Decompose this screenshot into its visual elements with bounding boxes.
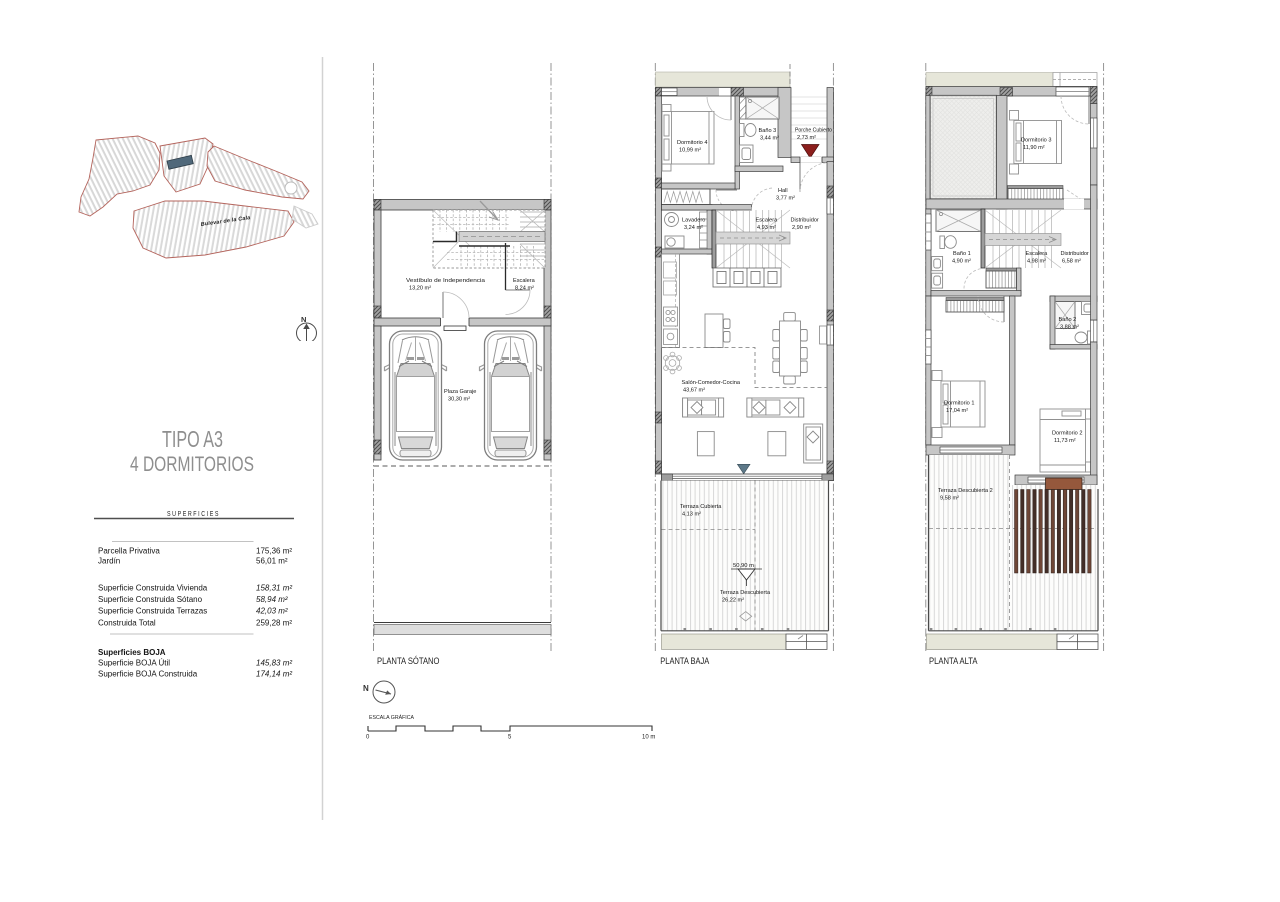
svg-text:Escalera: Escalera [513,278,536,284]
svg-text:Distribuidor 2: Distribuidor 2 [1061,251,1094,257]
svg-text:Lavadero: Lavadero [682,218,705,224]
svg-text:8,24 m²: 8,24 m² [515,286,534,292]
svg-text:3,44 m²: 3,44 m² [760,136,779,142]
svg-text:PLANTA BAJA: PLANTA BAJA [660,656,709,666]
svg-text:11,90 m²: 11,90 m² [1023,145,1045,151]
svg-text:Dormitorio 3: Dormitorio 3 [1021,138,1051,144]
svg-text:Escalera: Escalera [756,218,779,224]
svg-text:175,36 m²: 175,36 m² [256,547,292,556]
svg-text:Terraza Descubierta: Terraza Descubierta [720,590,771,596]
svg-text:Terraza Descubierta 2: Terraza Descubierta 2 [938,488,993,494]
svg-text:TIPO A3: TIPO A3 [162,426,223,452]
svg-text:Superficie Construida Sótano: Superficie Construida Sótano [98,595,203,604]
svg-text:58,94 m²: 58,94 m² [256,595,288,604]
svg-text:3,88 m²: 3,88 m² [1060,325,1079,331]
svg-text:259,28 m²: 259,28 m² [256,619,292,628]
svg-text:42,03 m²: 42,03 m² [256,607,288,616]
svg-text:4,98 m²: 4,98 m² [1027,259,1046,265]
svg-text:Superficie BOJA Construida: Superficie BOJA Construida [98,670,198,679]
svg-text:10,99 m²: 10,99 m² [679,148,701,154]
svg-text:174,14 m²: 174,14 m² [256,670,292,679]
svg-text:Hall: Hall [778,188,788,194]
svg-text:Superficie BOJA Útil: Superficie BOJA Útil [98,659,170,668]
svg-text:13,20 m²: 13,20 m² [409,286,431,292]
svg-text:Porche Cubierto: Porche Cubierto [795,128,832,134]
svg-text:10 m: 10 m [642,735,655,741]
svg-text:Distribuidor: Distribuidor [791,218,819,224]
svg-text:Terraza Cubierta: Terraza Cubierta [680,504,722,510]
svg-text:4,93 m²: 4,93 m² [757,225,776,231]
svg-text:PLANTA ALTA: PLANTA ALTA [929,656,978,666]
svg-text:4 DORMITORIOS: 4 DORMITORIOS [130,453,254,476]
svg-text:50,90 m: 50,90 m [733,563,754,569]
svg-text:Baño 1: Baño 1 [953,251,971,257]
svg-text:56,01 m²: 56,01 m² [256,557,288,566]
svg-text:3,77 m²: 3,77 m² [776,196,795,202]
svg-text:Superficie Construida Terrazas: Superficie Construida Terrazas [98,607,207,616]
svg-text:Superficies BOJA: Superficies BOJA [98,648,166,657]
svg-text:17,04 m²: 17,04 m² [946,408,968,414]
svg-text:4,13 m²: 4,13 m² [682,512,701,518]
svg-text:158,31 m²: 158,31 m² [256,584,292,593]
svg-text:11,73 m²: 11,73 m² [1054,438,1076,444]
svg-text:Dormitorio 1: Dormitorio 1 [944,401,974,407]
svg-text:Vestíbulo de Independencia: Vestíbulo de Independencia [406,278,486,284]
svg-text:4,90 m²: 4,90 m² [952,259,971,265]
svg-text:26,22 m²: 26,22 m² [722,598,744,604]
svg-text:Dormitorio 2: Dormitorio 2 [1052,431,1082,437]
svg-text:PLANTA SÓTANO: PLANTA SÓTANO [377,656,440,666]
svg-text:SUPERFICIES: SUPERFICIES [167,509,220,518]
svg-text:ESCALA GRÁFICA: ESCALA GRÁFICA [369,714,414,721]
svg-text:2,90 m²: 2,90 m² [792,225,811,231]
svg-text:30,30 m²: 30,30 m² [448,397,470,403]
svg-text:Parcella Privativa: Parcella Privativa [98,547,160,556]
svg-text:2,73 m²: 2,73 m² [797,135,816,141]
svg-text:Plaza Garaje: Plaza Garaje [444,389,476,395]
svg-text:Dormitorio 4: Dormitorio 4 [677,140,707,146]
svg-text:3,24 m²: 3,24 m² [684,225,703,231]
svg-text:9,58 m²: 9,58 m² [940,496,959,502]
svg-text:Jardín: Jardín [98,557,120,566]
svg-text:Baño 3: Baño 3 [759,128,777,134]
svg-text:Construida Total: Construida Total [98,619,156,628]
svg-text:Superficie Construida Vivienda: Superficie Construida Vivienda [98,584,208,593]
svg-text:6,58 m²: 6,58 m² [1062,259,1081,265]
svg-text:145,83 m²: 145,83 m² [256,659,292,668]
svg-text:Baño 2: Baño 2 [1059,317,1077,323]
svg-text:43,67 m²: 43,67 m² [683,388,705,394]
svg-text:Salón-Comedor-Cocina: Salón-Comedor-Cocina [682,380,741,386]
svg-text:N: N [363,684,369,693]
svg-text:Escalera: Escalera [1026,251,1049,257]
